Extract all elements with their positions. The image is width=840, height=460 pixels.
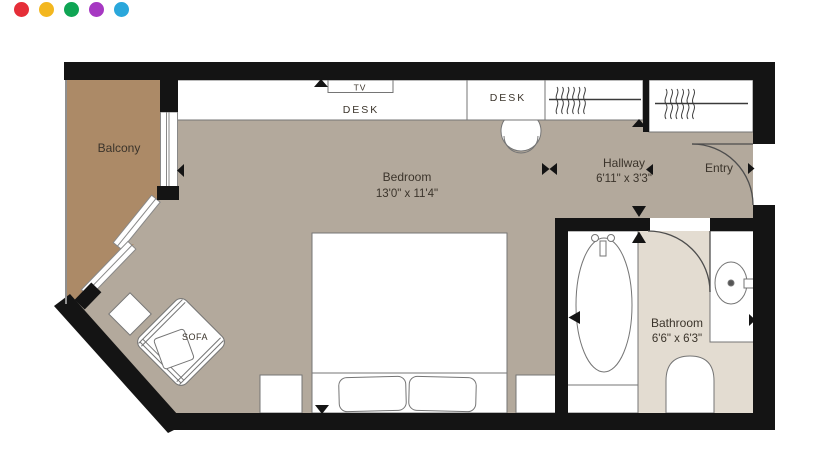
wall-bathroom-left: [555, 218, 568, 420]
wall-bathroom-top-right: [710, 218, 755, 231]
bathtub-faucet-knob-left: [592, 235, 599, 242]
nightstand-left: [260, 375, 302, 413]
floor-plan: Balcony Bedroom 13'0" x 11'4" Hallway 6'…: [0, 0, 840, 460]
nightstand-right: [516, 375, 557, 413]
desk-hallway-label: DESK: [490, 92, 527, 104]
balcony-label: Balcony: [98, 141, 141, 155]
wall-window-block: [157, 186, 179, 200]
wall-bottom: [166, 413, 775, 430]
wall-wardrobe-divider: [643, 80, 649, 132]
bedroom-dimensions: 13'0" x 11'4": [376, 188, 438, 200]
bathtub-spout: [600, 241, 606, 256]
wall-right-upper: [753, 62, 775, 144]
desk-window-label: DESK: [343, 104, 380, 116]
bathroom-label: Bathroom: [651, 316, 703, 330]
bathroom-dimensions: 6'6" x 6'3": [652, 333, 702, 345]
wall-bathroom-top-left: [555, 218, 650, 231]
bedroom-label: Bedroom: [383, 170, 432, 184]
bed-pillow-left: [339, 376, 407, 412]
sofa-label: SOFA: [182, 332, 208, 342]
wall-top: [64, 62, 775, 80]
wardrobe-right: [649, 80, 753, 132]
bathtub-faucet-knob-right: [608, 235, 615, 242]
wall-balcony-stub: [160, 78, 178, 112]
sink-drain: [728, 280, 734, 286]
bed-pillow-right: [409, 376, 477, 412]
wall-right-lower: [753, 205, 775, 430]
hallway-dimensions: 6'11" x 3'3": [596, 173, 652, 185]
bathtub: [576, 238, 632, 372]
hallway-label: Hallway: [603, 156, 645, 170]
entry-label: Entry: [705, 161, 733, 175]
toilet: [666, 356, 714, 413]
bathroom-door-opening: [648, 218, 710, 231]
tv-label: TV: [354, 83, 367, 93]
